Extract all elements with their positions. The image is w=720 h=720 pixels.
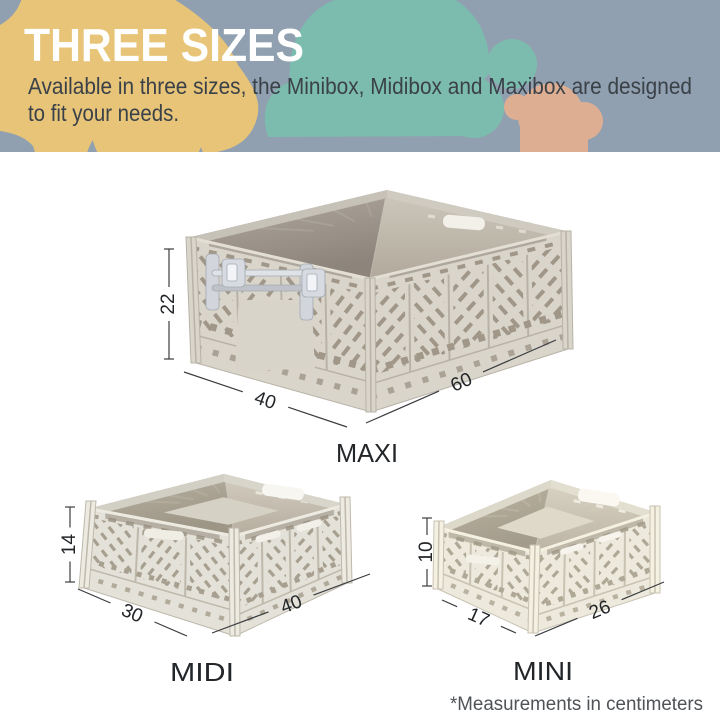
svg-text:Available in three sizes, the: Available in three sizes, the Minibox, M… [28,73,692,99]
svg-text:to fit your needs.: to fit your needs. [28,100,179,126]
svg-text:THREE SIZES: THREE SIZES [24,19,304,71]
svg-text:10: 10 [416,541,437,562]
svg-text:MAXI: MAXI [336,438,398,468]
svg-text:MIDI: MIDI [170,657,234,687]
svg-text:22: 22 [158,293,179,314]
svg-text:MINI: MINI [513,656,573,686]
svg-text:*Measurements in centimeters: *Measurements in centimeters [450,694,703,715]
svg-text:14: 14 [59,534,80,556]
